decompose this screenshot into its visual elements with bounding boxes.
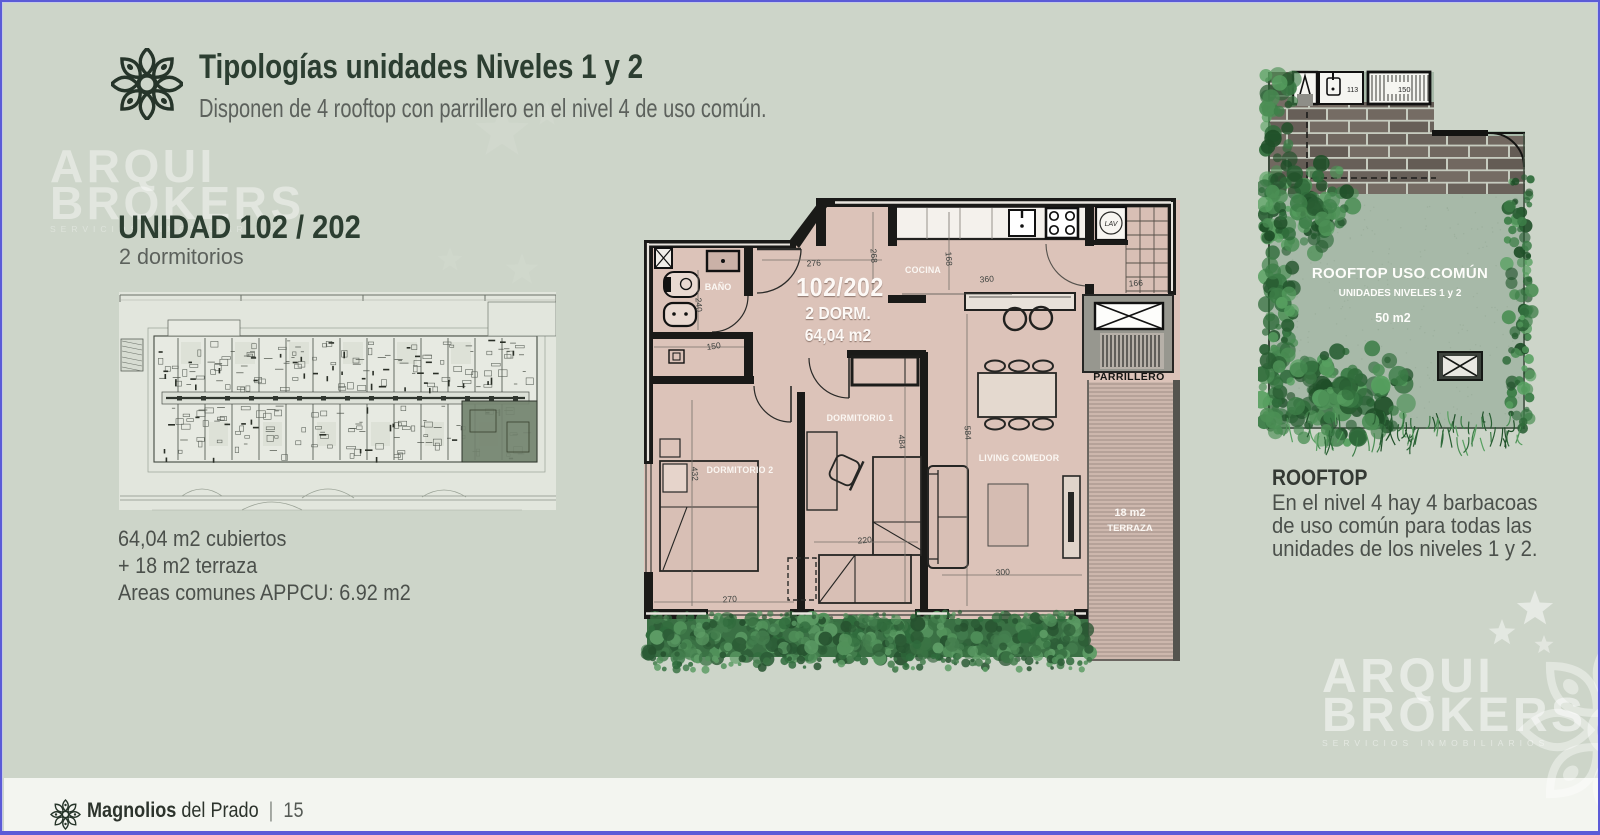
svg-text:DORMITORIO 2: DORMITORIO 2 (707, 465, 774, 475)
svg-text:50 m2: 50 m2 (1375, 311, 1410, 325)
svg-text:166: 166 (1128, 278, 1143, 289)
svg-text:TERRAZA: TERRAZA (1107, 523, 1153, 534)
svg-text:18 m2: 18 m2 (1114, 507, 1145, 519)
svg-text:484: 484 (897, 434, 908, 449)
svg-text:LIVING COMEDOR: LIVING COMEDOR (979, 453, 1060, 463)
svg-text:COCINA: COCINA (905, 265, 941, 275)
svg-text:64,04 m2: 64,04 m2 (805, 325, 871, 345)
svg-text:584: 584 (963, 425, 974, 440)
svg-text:268: 268 (869, 248, 880, 263)
svg-text:150: 150 (1398, 85, 1411, 94)
svg-text:432: 432 (690, 466, 701, 481)
svg-text:2 DORM.: 2 DORM. (805, 303, 871, 323)
svg-text:PARRILLERO: PARRILLERO (1093, 371, 1164, 383)
svg-text:113: 113 (1347, 87, 1358, 94)
svg-text:276: 276 (806, 258, 821, 269)
svg-text:220: 220 (857, 534, 872, 545)
svg-text:168: 168 (944, 251, 955, 266)
svg-text:BAÑO: BAÑO (705, 282, 732, 292)
svg-text:360: 360 (979, 274, 994, 285)
svg-text:LAV: LAV (1105, 221, 1119, 228)
svg-text:300: 300 (995, 567, 1010, 578)
svg-text:150: 150 (706, 340, 722, 352)
svg-text:UNIDADES NIVELES 1 y 2: UNIDADES NIVELES 1 y 2 (1339, 288, 1462, 299)
svg-text:ROOFTOP USO COMÚN: ROOFTOP USO COMÚN (1312, 264, 1488, 282)
svg-text:240: 240 (694, 297, 705, 312)
svg-text:DORMITORIO 1: DORMITORIO 1 (827, 413, 894, 423)
svg-text:102/202: 102/202 (796, 274, 884, 302)
svg-text:270: 270 (722, 594, 737, 605)
